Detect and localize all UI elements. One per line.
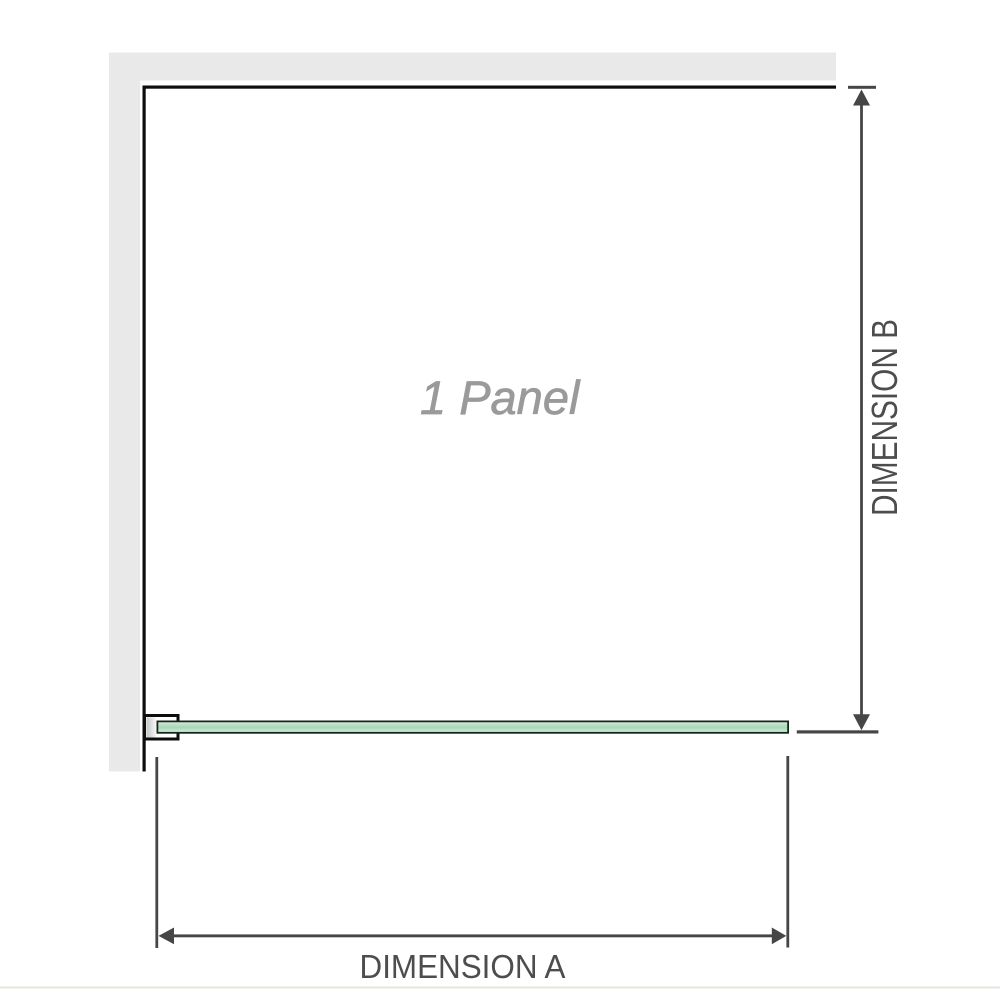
svg-text:DIMENSION A: DIMENSION A	[360, 949, 567, 986]
svg-text:1 Panel: 1 Panel	[420, 371, 581, 424]
svg-text:DIMENSION B: DIMENSION B	[864, 319, 905, 516]
